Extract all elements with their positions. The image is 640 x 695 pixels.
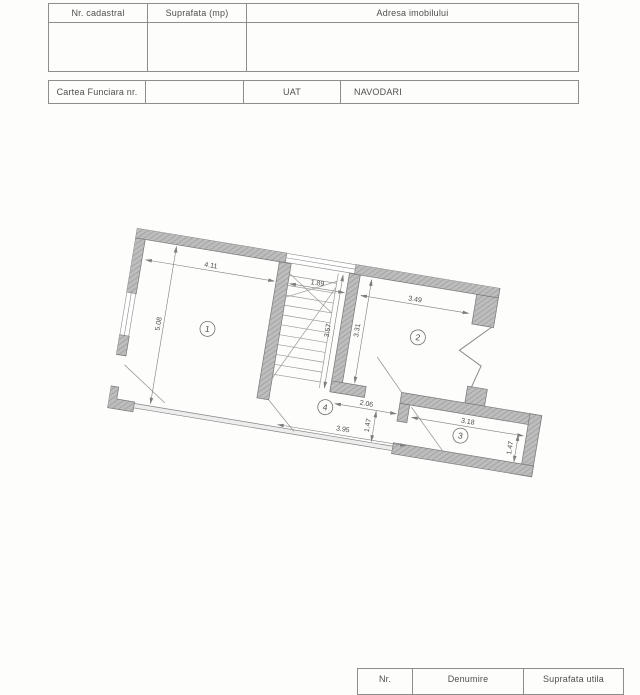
window-top-icon bbox=[285, 253, 356, 273]
room-3-label: 3 bbox=[457, 430, 464, 441]
wall-left-upper bbox=[126, 238, 145, 294]
room-2-label: 2 bbox=[415, 332, 422, 343]
bottom-table-header-denumire: Denumire bbox=[413, 669, 524, 695]
door-swing-room2 bbox=[372, 357, 407, 392]
bottom-table-header-nr: Nr. bbox=[358, 669, 413, 695]
dim-room1-width: 4.11 bbox=[204, 262, 218, 271]
top-table-header-nr-cadastral: Nr. cadastral bbox=[49, 4, 148, 23]
top-table-empty-adresa bbox=[247, 23, 579, 72]
dim-room2-depth: 3.31 bbox=[353, 323, 362, 338]
room-4-label: 4 bbox=[322, 402, 329, 413]
wall-top-left bbox=[135, 228, 287, 263]
door-swing-room3 bbox=[405, 407, 449, 451]
dim-terrace-width: 3.95 bbox=[336, 425, 351, 434]
wall-terrace-corner bbox=[107, 386, 136, 412]
scanned-cadastral-page: { "document": { "top_table": { "headers"… bbox=[0, 0, 640, 688]
terrace-edge-line bbox=[134, 403, 393, 450]
dim-room2-width: 3.49 bbox=[408, 295, 423, 304]
dim-room3-width: 3.18 bbox=[460, 418, 475, 427]
floor-plan: 4.11 1.89 3.49 5.08 3.57 3.31 2.06 3.95 … bbox=[106, 228, 571, 489]
dim-room3-depth-right: 1.47 bbox=[506, 441, 515, 456]
wall-left-lower bbox=[116, 335, 129, 356]
wall-top-right bbox=[354, 264, 500, 298]
door-swing-room1 bbox=[119, 365, 169, 403]
cf-value-empty bbox=[146, 81, 244, 104]
uat-label: UAT bbox=[244, 81, 341, 104]
room-1-label: 1 bbox=[204, 324, 211, 335]
wall-room3-left bbox=[397, 403, 410, 422]
bottom-table-header-suprafata-utila: Suprafata utila bbox=[524, 669, 624, 695]
door-swings bbox=[118, 316, 456, 455]
uat-value: NAVODARI bbox=[341, 81, 579, 104]
dim-room3-depth-left: 1.47 bbox=[364, 418, 373, 433]
dimension-lines bbox=[123, 242, 545, 465]
dim-stair-width: 1.89 bbox=[310, 279, 325, 288]
wall-room2-right-pillar bbox=[472, 294, 499, 327]
top-table: Nr. cadastral Suprafata (mp) Adresa imob… bbox=[48, 3, 579, 72]
floor-plan-drawing: 4.11 1.89 3.49 5.08 3.57 3.31 2.06 3.95 … bbox=[106, 228, 571, 489]
cf-label: Cartea Funciara nr. bbox=[49, 81, 146, 104]
top-table-header-adresa: Adresa imobilului bbox=[247, 4, 579, 23]
window-left-icon bbox=[120, 292, 136, 336]
dim-stair-depth: 3.57 bbox=[324, 323, 333, 338]
dim-room1-depth: 5.08 bbox=[155, 317, 164, 332]
wall-room2-bottom bbox=[330, 381, 366, 398]
dim-passage-width: 2.06 bbox=[359, 400, 374, 409]
wall-break-zigzag-icon bbox=[454, 323, 492, 389]
bottom-table: Nr. Denumire Suprafata utila bbox=[357, 668, 624, 695]
top-table-header-suprafata: Suprafata (mp) bbox=[148, 4, 247, 23]
cartea-funciara-table: Cartea Funciara nr. UAT NAVODARI bbox=[48, 80, 579, 104]
top-table-empty-nr-cadastral bbox=[49, 23, 148, 72]
wall-room1-stair-divider bbox=[257, 262, 291, 400]
top-table-empty-suprafata bbox=[148, 23, 247, 72]
